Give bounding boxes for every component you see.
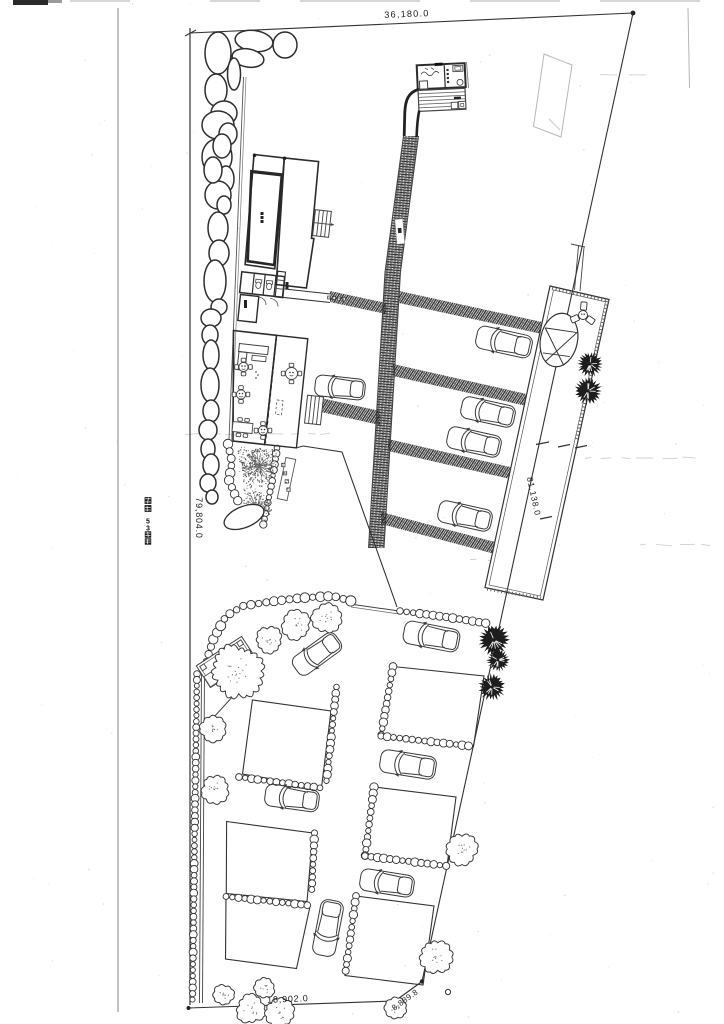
svg-text:18,902.0: 18,902.0 [267,993,309,1005]
svg-text:5: 5 [146,519,150,526]
svg-text:79,804.0: 79,804.0 [194,497,204,538]
svg-text:36,180.0: 36,180.0 [384,8,430,20]
